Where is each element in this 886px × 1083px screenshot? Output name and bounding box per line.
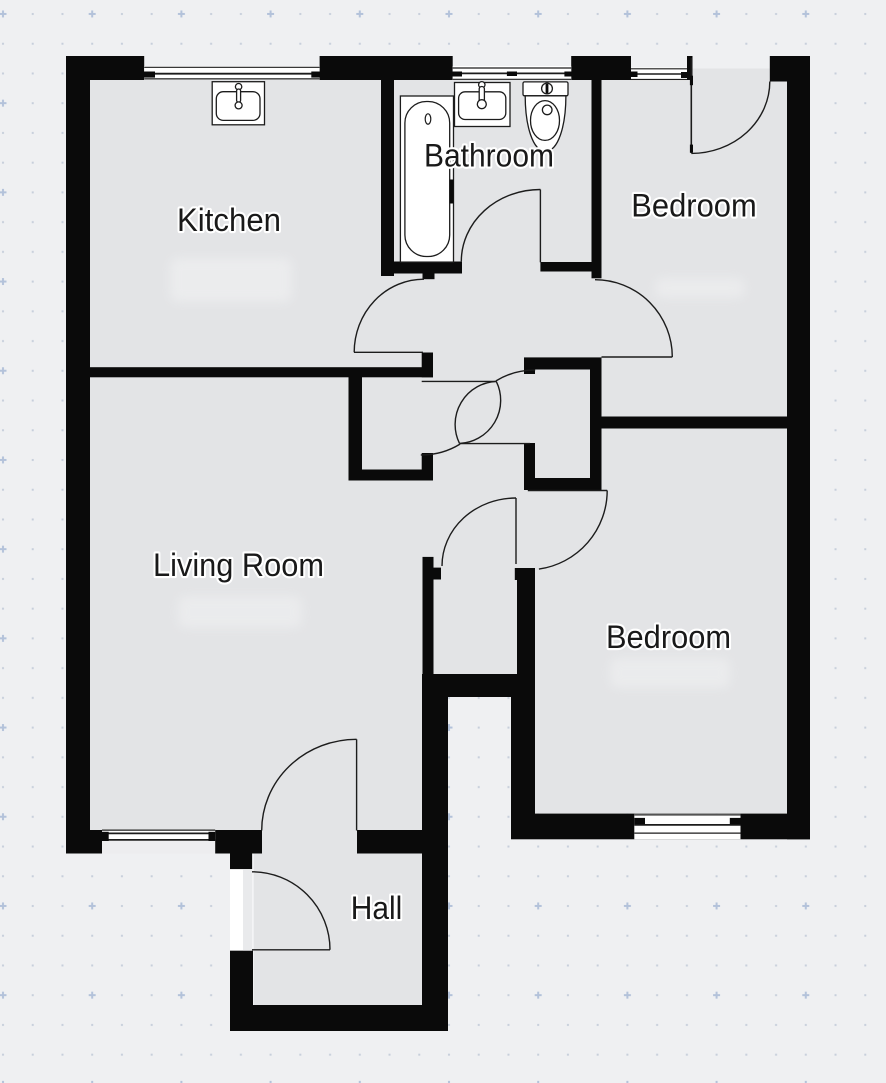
svg-text:Bathroom: Bathroom [424, 137, 554, 173]
svg-text:Living Room: Living Room [153, 547, 324, 583]
svg-text:Hall: Hall [351, 890, 403, 926]
svg-text:Kitchen: Kitchen [177, 202, 281, 238]
svg-text:Bedroom: Bedroom [631, 188, 757, 224]
svg-text:Bedroom: Bedroom [606, 619, 731, 655]
